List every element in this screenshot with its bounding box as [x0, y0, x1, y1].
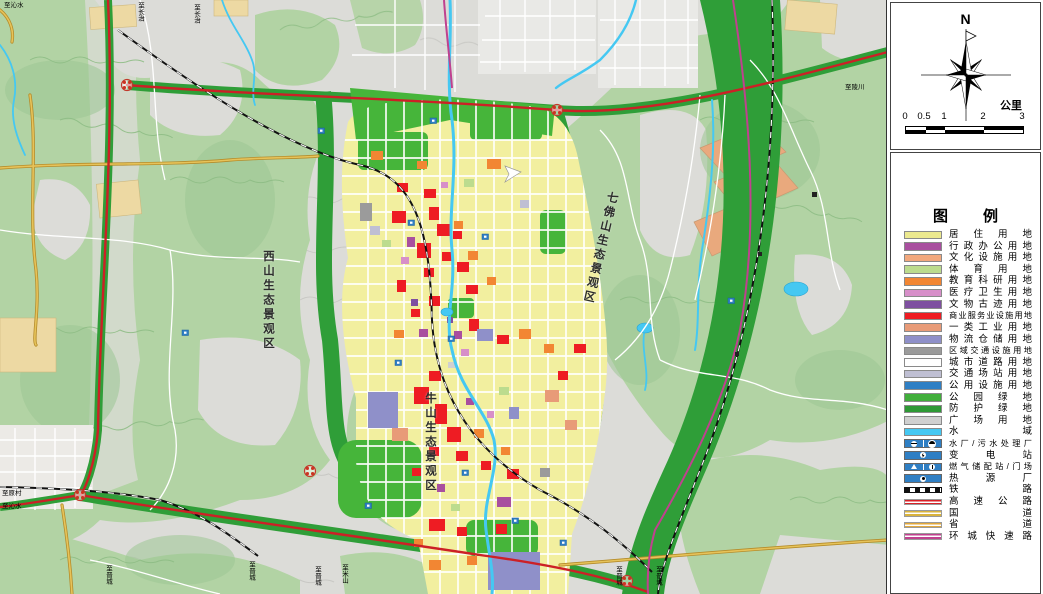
- legend-label: 居住用地: [949, 230, 1032, 240]
- legend-label: 环城快速路: [949, 532, 1032, 542]
- legend-label: 交通场站用地: [949, 369, 1032, 379]
- legend-item-railway: 铁路: [904, 484, 1032, 496]
- legend-box: 图 例 居住用地 行政办公用地 文化设施用地 体育用地 教育科研用地 医疗卫生用…: [890, 152, 1041, 594]
- legend-item-medical: 医疗卫生用地: [904, 287, 1032, 299]
- legend-item-protective-green: 防护绿地: [904, 403, 1032, 415]
- ring-expressway-line-icon: [904, 533, 942, 539]
- legend-item-logistics: 物流仓储用地: [904, 333, 1032, 345]
- edge-label-jincheng-2: 至晋城: [247, 561, 254, 581]
- legend-item-commercial: 商业服务业设施用地: [904, 310, 1032, 322]
- edge-label-jincheng-3: 至晋城: [313, 566, 320, 586]
- legend-label: 燃气储配站/门场: [949, 463, 1032, 471]
- legend-item-gas-station: 燃气储配站/门场: [904, 461, 1032, 473]
- national-road-line-icon: [904, 510, 942, 516]
- legend-label: 公用设施用地: [949, 381, 1032, 391]
- legend-label: 医疗卫生用地: [949, 288, 1032, 298]
- legend-swatch: [904, 265, 942, 274]
- heat-plant-icon: [904, 474, 942, 483]
- legend-swatch: [904, 231, 942, 240]
- railway-line-icon: [904, 487, 942, 493]
- legend-label: 防护绿地: [949, 404, 1032, 414]
- legend-label: 物流仓储用地: [949, 335, 1032, 345]
- legend-item-urban-road: 城市道路用地: [904, 357, 1032, 369]
- planning-map-page: 西山生态景观区 七佛山生态景观区 牛山生态景观区 至沁水 至长治 至长治 至陵川…: [0, 0, 1043, 594]
- legend-title: 图 例: [891, 205, 1040, 226]
- legend-label: 体育用地: [949, 265, 1032, 275]
- legend-item-education: 教育科研用地: [904, 275, 1032, 287]
- legend-label: 教育科研用地: [949, 276, 1032, 286]
- legend-item-provincial-road: 省道: [904, 519, 1032, 531]
- region-label-xishan: 西山生态景观区: [260, 250, 276, 352]
- edge-label-qinshui-nw: 至沁水: [4, 3, 24, 10]
- legend-label: 一类工业用地: [949, 323, 1032, 333]
- edge-label-lingchuan: 至陵川: [845, 85, 865, 92]
- legend-item-ring-expressway: 环城快速路: [904, 531, 1032, 543]
- legend-label: 水域: [949, 427, 1032, 437]
- legend-swatch: [904, 416, 942, 425]
- legend-label: 文化设施用地: [949, 253, 1032, 263]
- legend-swatch: [904, 312, 942, 321]
- gas-station-icon: [904, 463, 942, 472]
- legend-item-heritage: 文物古迹用地: [904, 299, 1032, 311]
- legend-item-residential: 居住用地: [904, 229, 1032, 241]
- legend-item-sports: 体育用地: [904, 264, 1032, 276]
- legend-item-cultural: 文化设施用地: [904, 252, 1032, 264]
- legend-item-plaza: 广场用地: [904, 415, 1032, 427]
- legend-label: 文物古迹用地: [949, 300, 1032, 310]
- legend-swatch: [904, 277, 942, 286]
- legend-swatch: [904, 289, 942, 298]
- legend-item-admin-office: 行政办公用地: [904, 241, 1032, 253]
- substation-icon: [904, 451, 942, 460]
- edge-label-qinshui-w: 至沁水: [2, 504, 22, 511]
- legend-swatch: [904, 300, 942, 309]
- legend-swatch: [904, 428, 942, 437]
- legend-swatch: [904, 358, 942, 367]
- legend-item-industrial-1: 一类工业用地: [904, 322, 1032, 334]
- legend-swatch: [904, 381, 942, 390]
- legend-swatch: [904, 405, 942, 414]
- scale-bar: [905, 126, 1024, 134]
- legend-label: 省道: [949, 520, 1032, 530]
- legend-label: 水厂/污水处理厂: [949, 440, 1032, 448]
- legend-label: 铁路: [949, 485, 1032, 495]
- compass-scale-box: N 公里 0 0.5 1 2 3: [890, 2, 1041, 150]
- legend-swatch: [904, 323, 942, 332]
- legend-item-heat-plant: 热源厂: [904, 473, 1032, 485]
- edge-label-changzhi-1: 至长治: [136, 2, 143, 22]
- legend-label: 行政办公用地: [949, 242, 1032, 252]
- legend-item-water-plant: 水厂/污水处理厂: [904, 438, 1032, 450]
- edge-label-changzhi-2: 至长治: [192, 4, 199, 24]
- region-label-niushan: 牛山生态景观区: [422, 392, 438, 494]
- legend-label: 变电站: [949, 451, 1032, 461]
- legend-swatch: [904, 335, 942, 344]
- water-plant-icon: [904, 439, 942, 448]
- legend-swatch: [904, 370, 942, 379]
- legend-item-regional-transport: 区域交通设施用地: [904, 345, 1032, 357]
- legend-item-substation: 变电站: [904, 450, 1032, 462]
- legend-label: 广场用地: [949, 416, 1032, 426]
- legend-item-park-green: 公园绿地: [904, 392, 1032, 404]
- legend-swatch: [904, 254, 942, 263]
- provincial-road-line-icon: [904, 522, 942, 528]
- scale-tick-labels: 0 0.5 1 2 3: [901, 111, 1029, 123]
- edge-label-mishan: 至米山: [340, 564, 347, 584]
- legend-label: 高速公路: [949, 497, 1032, 507]
- legend-label: 国道: [949, 509, 1032, 519]
- edge-label-jincheng-5: 至晋城: [654, 566, 661, 586]
- legend-swatch: [904, 242, 942, 251]
- legend-rows: 居住用地 行政办公用地 文化设施用地 体育用地 教育科研用地 医疗卫生用地 文物…: [904, 229, 1032, 542]
- legend-item-transport-station: 交通场站用地: [904, 368, 1032, 380]
- legend-item-water-area: 水域: [904, 426, 1032, 438]
- legend-item-national-road: 国道: [904, 508, 1032, 520]
- legend-swatch: [904, 347, 942, 356]
- legend-label: 商业服务业设施用地: [949, 312, 1032, 320]
- legend-item-expressway: 高速公路: [904, 496, 1032, 508]
- edge-label-jincheng-4: 至晋城: [614, 566, 621, 586]
- legend-item-public-utility: 公用设施用地: [904, 380, 1032, 392]
- legend-label: 公园绿地: [949, 393, 1032, 403]
- legend-label: 热源厂: [949, 474, 1032, 484]
- edge-label-jincheng-1: 至晋城: [104, 565, 111, 585]
- legend-label: 区域交通设施用地: [949, 347, 1032, 355]
- legend-label: 城市道路用地: [949, 358, 1032, 368]
- map-canvas: [0, 0, 890, 594]
- edge-label-yuancun: 至原村: [2, 491, 22, 498]
- legend-swatch: [904, 393, 942, 402]
- expressway-line-icon: [904, 499, 942, 505]
